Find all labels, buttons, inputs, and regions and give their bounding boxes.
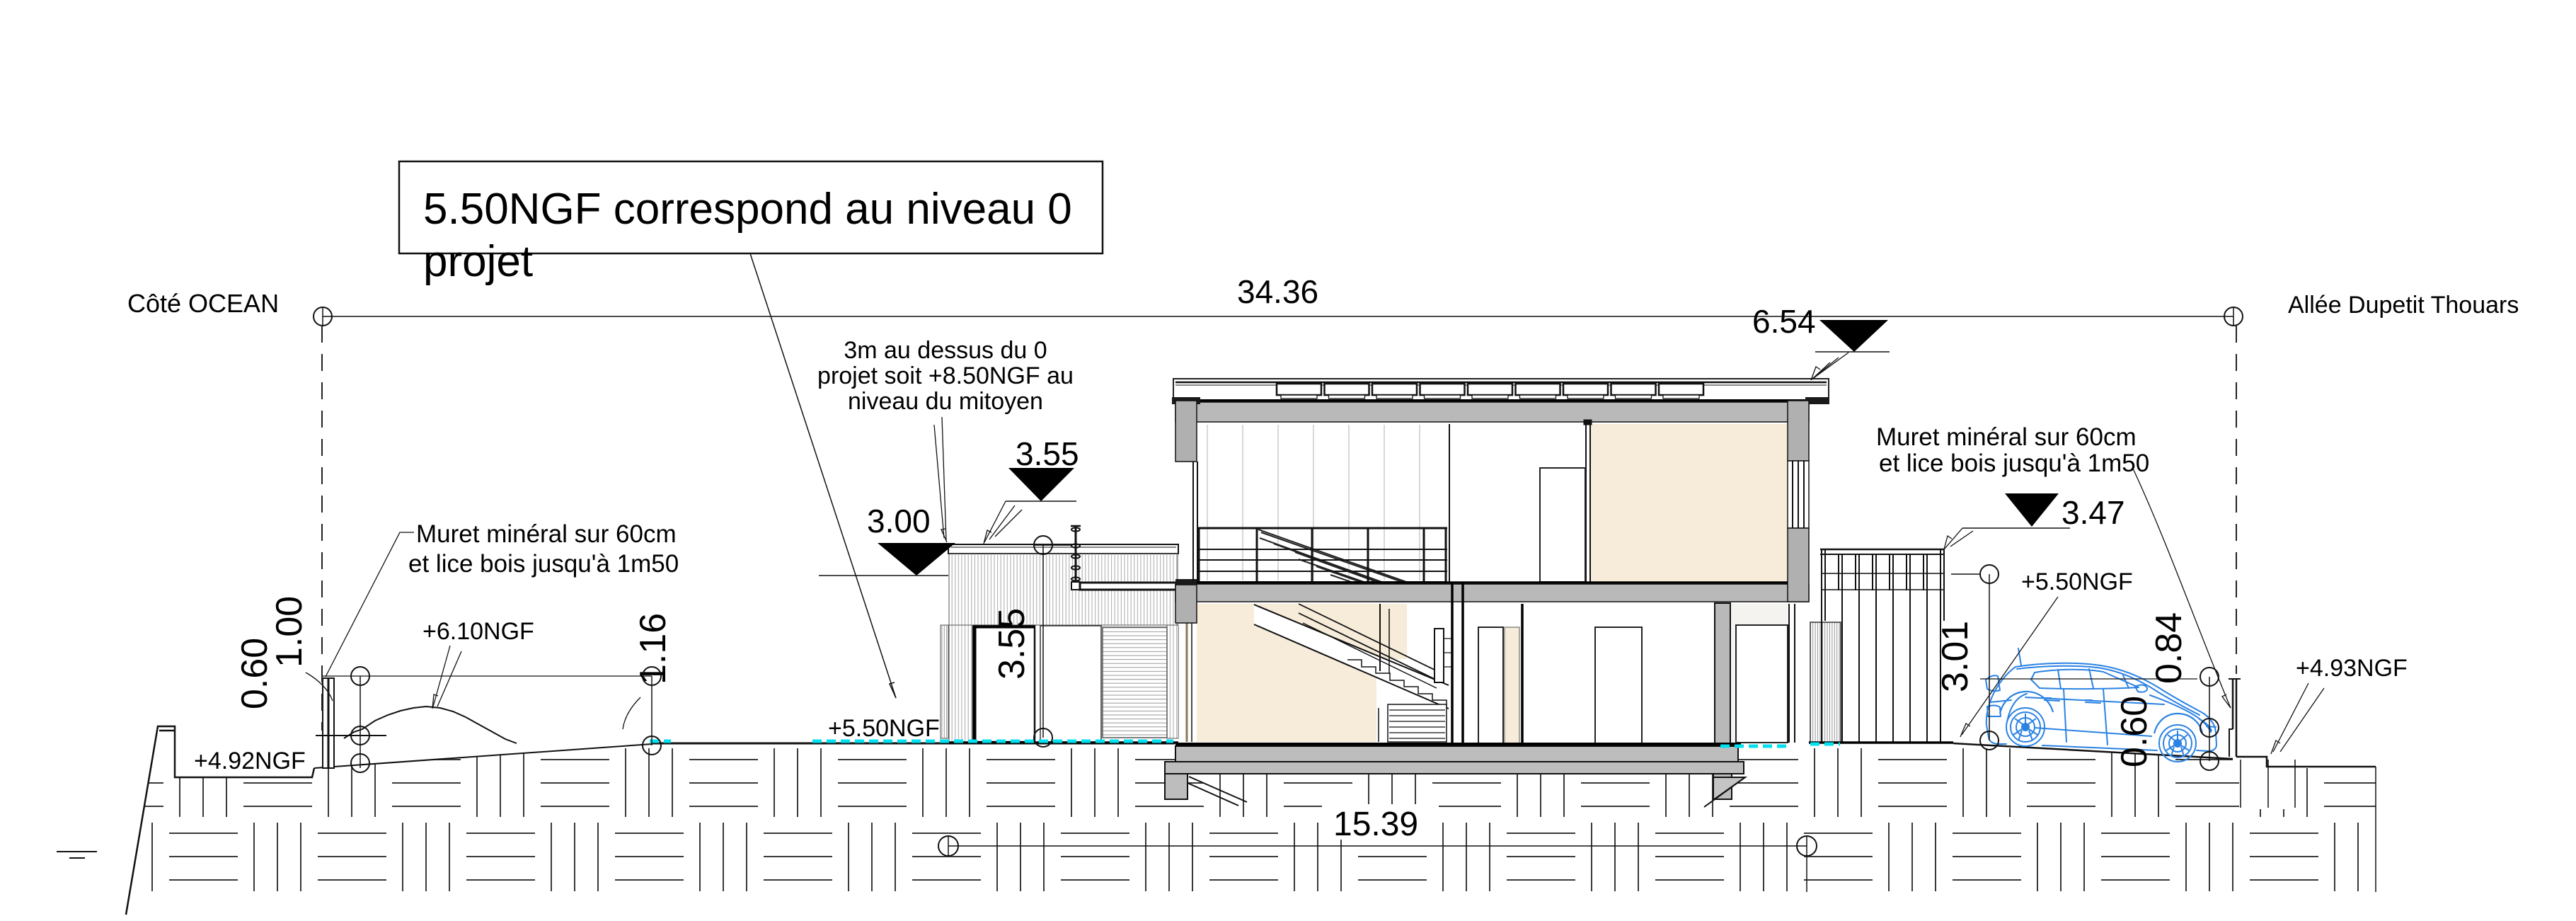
- svg-text:6.54: 6.54: [1752, 303, 1816, 340]
- svg-text:Allée Dupetit Thouars: Allée Dupetit Thouars: [2288, 292, 2519, 319]
- svg-text:15.39: 15.39: [1333, 806, 1418, 843]
- svg-text:3.47: 3.47: [2062, 494, 2125, 531]
- svg-text:et lice bois jusqu'à 1m50: et lice bois jusqu'à 1m50: [408, 550, 679, 578]
- svg-text:0.84: 0.84: [2149, 612, 2190, 684]
- svg-text:3.01: 3.01: [1935, 621, 1976, 692]
- svg-text:1.00: 1.00: [269, 596, 310, 668]
- svg-text:projet: projet: [423, 237, 533, 286]
- svg-text:1.16: 1.16: [633, 613, 674, 685]
- svg-text:+5.50NGF: +5.50NGF: [828, 715, 940, 742]
- svg-text:+4.92NGF: +4.92NGF: [194, 748, 306, 774]
- svg-text:+5.50NGF: +5.50NGF: [2021, 568, 2133, 595]
- svg-text:niveau du mitoyen: niveau du mitoyen: [848, 388, 1043, 415]
- svg-text:3.00: 3.00: [867, 503, 931, 539]
- svg-text:Côté OCEAN: Côté OCEAN: [127, 289, 279, 318]
- svg-text:Muret minéral sur 60cm: Muret minéral sur 60cm: [1876, 423, 2137, 451]
- svg-text:3.55: 3.55: [991, 608, 1033, 680]
- svg-text:3m au dessus du 0: 3m au dessus du 0: [844, 337, 1047, 364]
- svg-text:+4.93NGF: +4.93NGF: [2296, 655, 2408, 682]
- svg-text:et lice bois jusqu'à 1m50: et lice bois jusqu'à 1m50: [1879, 450, 2149, 477]
- svg-text:0.60: 0.60: [2114, 696, 2155, 767]
- svg-text:34.36: 34.36: [1237, 273, 1318, 310]
- svg-text:3.55: 3.55: [1016, 435, 1079, 472]
- svg-text:Muret minéral sur 60cm: Muret minéral sur 60cm: [416, 520, 677, 548]
- svg-text:+6.10NGF: +6.10NGF: [422, 618, 534, 645]
- svg-text:projet soit +8.50NGF au: projet soit +8.50NGF au: [817, 362, 1074, 389]
- svg-text:5.50NGF correspond au niveau 0: 5.50NGF correspond au niveau 0: [423, 185, 1072, 234]
